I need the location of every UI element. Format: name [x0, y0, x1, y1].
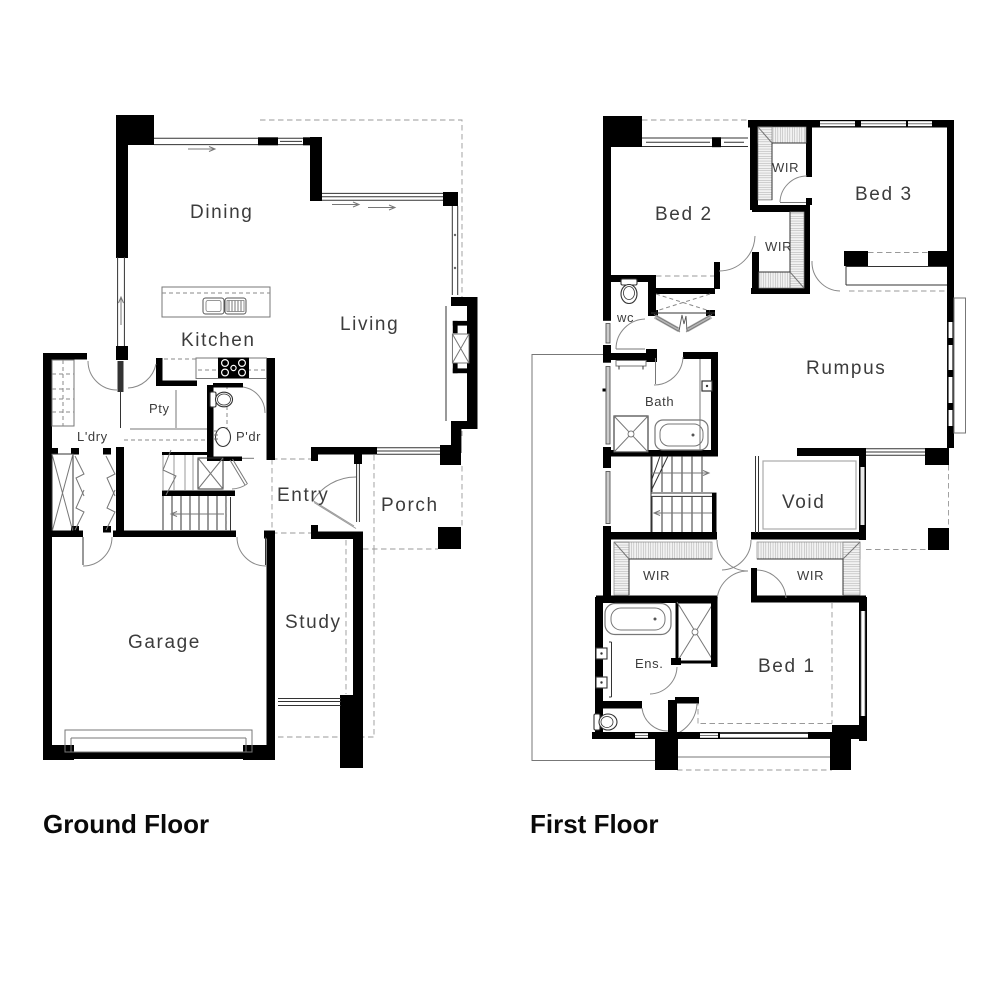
svg-text:Living: Living: [340, 314, 399, 335]
svg-text:Bed 3: Bed 3: [855, 184, 913, 205]
svg-text:Kitchen: Kitchen: [181, 330, 256, 351]
svg-text:P'dr: P'dr: [236, 429, 261, 444]
svg-text:Bed 2: Bed 2: [655, 204, 713, 225]
svg-text:WIR: WIR: [797, 568, 824, 583]
svg-text:WIR: WIR: [765, 239, 792, 254]
svg-text:L'dry: L'dry: [77, 429, 108, 444]
svg-text:Pty: Pty: [149, 401, 170, 416]
svg-text:WIR: WIR: [772, 160, 799, 175]
svg-text:Ground Floor: Ground Floor: [43, 809, 209, 839]
svg-text:Dining: Dining: [190, 202, 253, 223]
svg-text:Study: Study: [285, 612, 342, 633]
svg-text:Rumpus: Rumpus: [806, 358, 886, 379]
svg-text:wc: wc: [616, 310, 634, 325]
svg-text:Bed 1: Bed 1: [758, 656, 816, 677]
svg-text:Entry: Entry: [277, 485, 329, 506]
svg-text:Void: Void: [782, 492, 825, 513]
svg-text:WIR: WIR: [643, 568, 670, 583]
svg-text:First Floor: First Floor: [530, 809, 659, 839]
svg-text:Garage: Garage: [128, 632, 201, 653]
svg-text:Porch: Porch: [381, 495, 439, 516]
svg-text:Bath: Bath: [645, 394, 674, 409]
svg-text:Ens.: Ens.: [635, 656, 663, 671]
